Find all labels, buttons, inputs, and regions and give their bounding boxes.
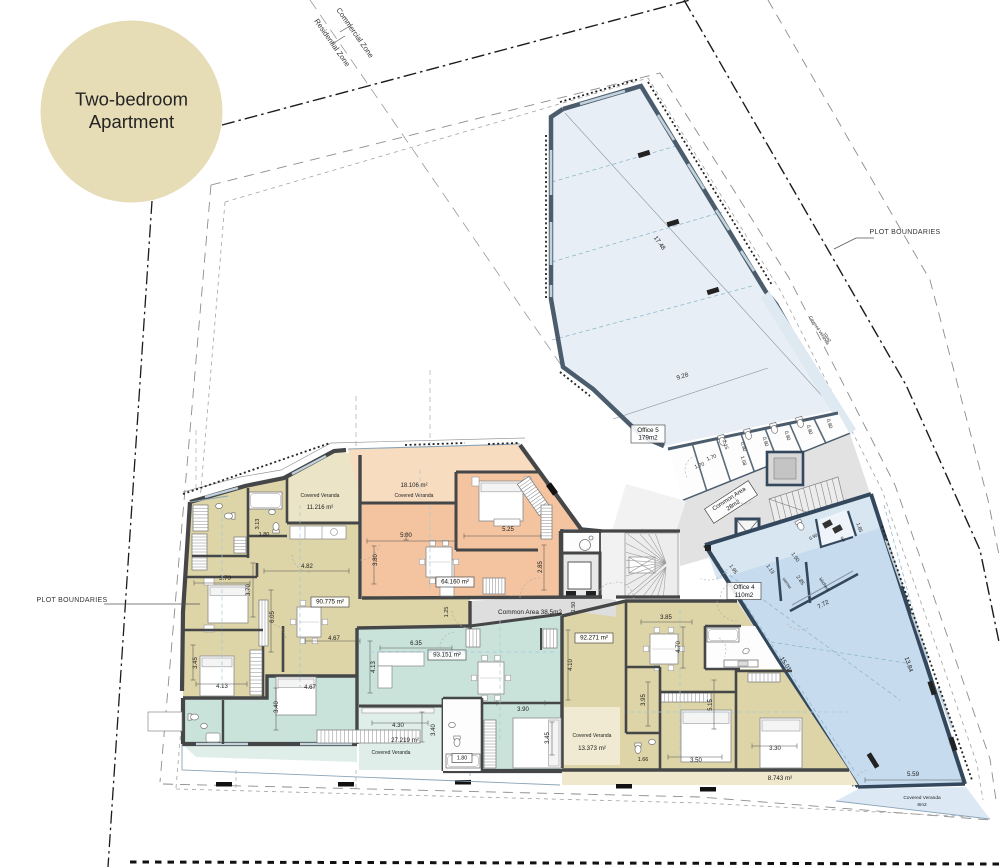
svg-text:Covered Veranda: Covered Veranda: [573, 733, 612, 739]
svg-text:5.59: 5.59: [907, 771, 920, 778]
svg-text:Office 5: Office 5: [637, 427, 659, 434]
svg-text:3.30: 3.30: [769, 746, 781, 752]
svg-text:PLOT BOUNDARIES: PLOT BOUNDARIES: [37, 597, 108, 604]
svg-text:Office 4: Office 4: [733, 584, 755, 591]
svg-text:4.82: 4.82: [301, 564, 313, 570]
svg-text:Covered Veranda: Covered Veranda: [903, 795, 941, 801]
svg-text:3.85: 3.85: [660, 615, 672, 621]
svg-text:Common Area 38.5m2: Common Area 38.5m2: [498, 609, 562, 616]
svg-text:Apartment: Apartment: [89, 111, 174, 132]
svg-text:3.50: 3.50: [690, 758, 702, 764]
svg-text:64.160 m²: 64.160 m²: [441, 579, 469, 586]
svg-text:4.10: 4.10: [568, 659, 574, 671]
svg-text:PLOT BOUNDARIES: PLOT BOUNDARIES: [870, 229, 941, 236]
svg-text:1.66: 1.66: [638, 757, 649, 763]
svg-text:3.40: 3.40: [431, 724, 437, 736]
svg-text:11.216 m²: 11.216 m²: [307, 505, 334, 511]
svg-text:13.373 m²: 13.373 m²: [578, 745, 606, 752]
svg-text:3.13: 3.13: [255, 519, 261, 530]
svg-text:3.90: 3.90: [517, 707, 529, 713]
svg-text:92.271 m²: 92.271 m²: [580, 635, 608, 642]
svg-text:3.45: 3.45: [545, 732, 551, 744]
svg-text:Covered Veranda: Covered Veranda: [301, 493, 340, 499]
svg-text:3.95: 3.95: [641, 694, 647, 706]
svg-text:3.40: 3.40: [274, 701, 280, 713]
svg-text:4.13: 4.13: [371, 661, 377, 673]
svg-text:8.743 m²: 8.743 m²: [768, 775, 792, 782]
svg-text:Two-bedroom: Two-bedroom: [75, 89, 188, 110]
svg-text:6.35: 6.35: [410, 641, 422, 647]
svg-text:4.67: 4.67: [304, 685, 316, 691]
svg-text:110m2: 110m2: [735, 592, 754, 599]
svg-text:4.70: 4.70: [676, 641, 682, 653]
svg-text:8m2: 8m2: [917, 802, 927, 808]
svg-text:3.45: 3.45: [193, 657, 199, 669]
svg-text:Covered Veranda: Covered Veranda: [372, 750, 411, 756]
svg-text:1.80: 1.80: [457, 755, 467, 761]
svg-text:2.85: 2.85: [538, 561, 544, 573]
svg-text:1.25: 1.25: [444, 607, 450, 618]
svg-text:93.151 m²: 93.151 m²: [433, 652, 461, 659]
svg-text:1.50: 1.50: [571, 602, 577, 613]
svg-text:5.25: 5.25: [502, 527, 514, 533]
svg-text:179m2: 179m2: [638, 435, 658, 442]
svg-text:27.219 m²: 27.219 m²: [391, 737, 419, 744]
svg-text:Covered Veranda: Covered Veranda: [395, 493, 434, 499]
svg-text:4.30: 4.30: [392, 723, 404, 729]
svg-text:3.70: 3.70: [246, 584, 252, 596]
svg-text:90.775 m²: 90.775 m²: [316, 599, 344, 606]
svg-text:5.15: 5.15: [708, 699, 714, 711]
svg-text:3.70: 3.70: [219, 576, 231, 582]
svg-text:18.106 m²: 18.106 m²: [400, 483, 427, 489]
svg-text:1.80: 1.80: [259, 532, 270, 538]
